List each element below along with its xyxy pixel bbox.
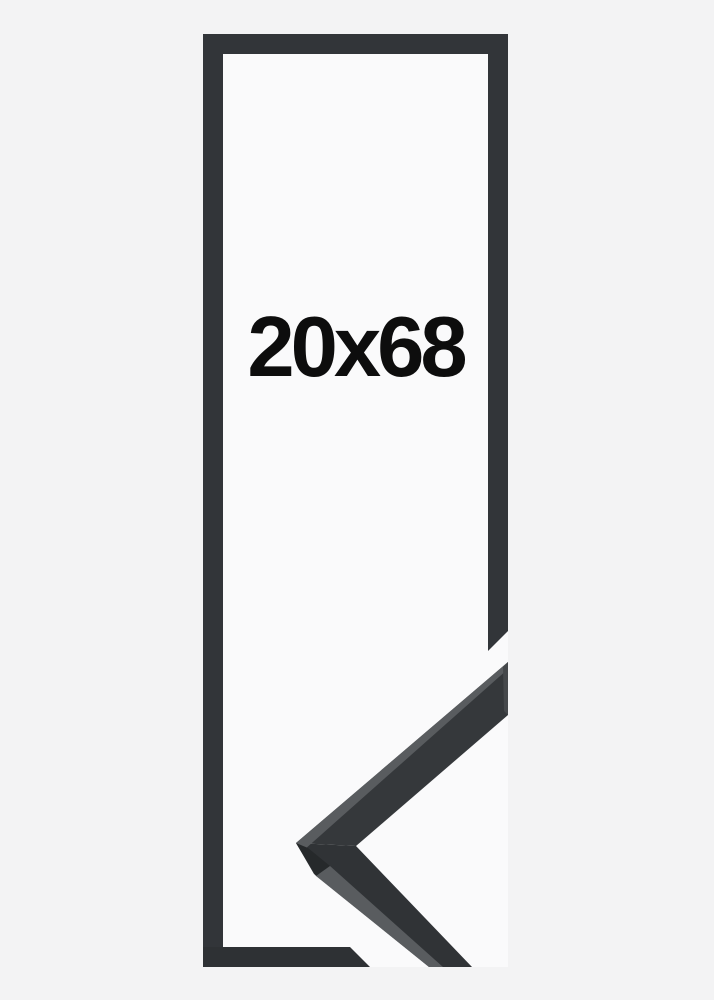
frame-product-image: 20x68 — [0, 0, 714, 1000]
frame-outline-bottom-bar — [203, 947, 370, 967]
frame-outline-left-bar — [203, 34, 223, 967]
frame-graphic — [0, 0, 714, 1000]
frame-size-label: 20x68 — [203, 305, 508, 390]
frame-outline-top-bar — [203, 34, 508, 54]
